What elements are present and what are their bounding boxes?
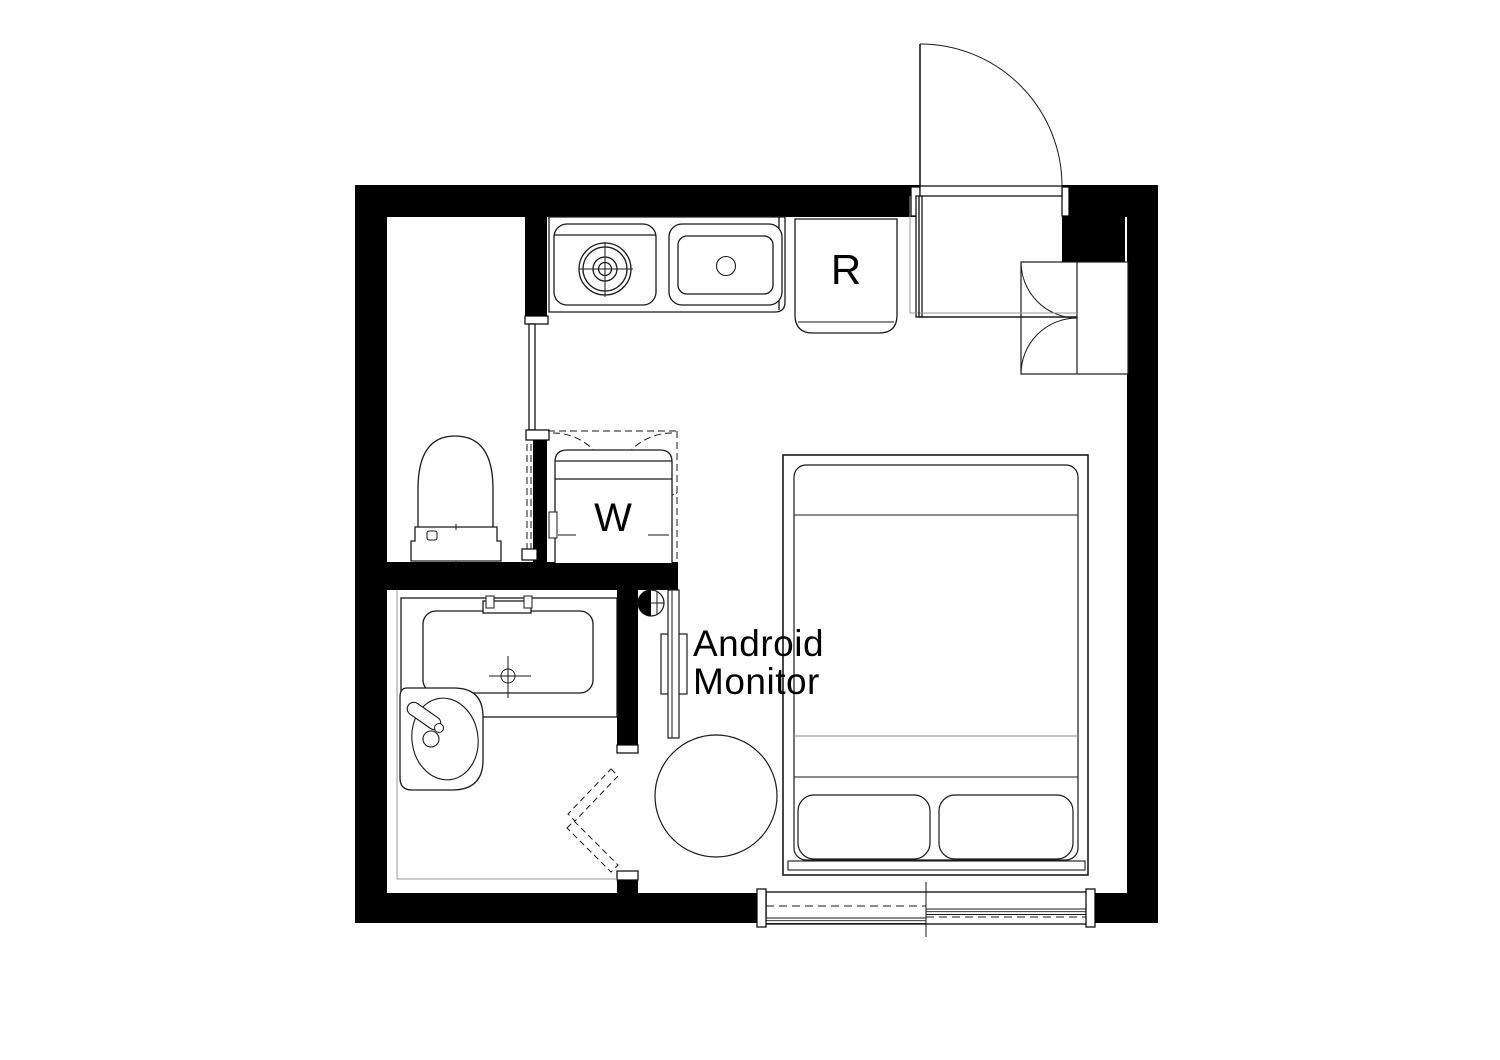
pillow-left	[798, 795, 930, 859]
bath-doorway-cap-top	[617, 745, 638, 753]
partition-cap-top	[525, 316, 548, 324]
stove	[554, 224, 656, 305]
window-cap-right	[1086, 889, 1095, 927]
refrigerator-label: R	[796, 246, 896, 294]
kitchen-sink	[669, 224, 782, 305]
entry-threshold	[920, 186, 1062, 196]
shoe-cabinet	[1021, 262, 1128, 374]
partition-cap-bottom	[526, 430, 549, 440]
wall-entry-stub	[1062, 217, 1125, 262]
toilet	[411, 436, 501, 569]
floor-plan-drawing	[0, 0, 1500, 1060]
floor-plan: R W AndroidMonitor	[0, 0, 1500, 1060]
wall-bathroom-right-lower	[617, 880, 638, 923]
glass-partition	[529, 324, 535, 430]
tub-knob-right	[524, 596, 532, 608]
bed-base-strip	[788, 861, 1085, 870]
washer-side-box	[549, 512, 557, 538]
door-jamb-right	[1062, 187, 1069, 216]
wall-kitchen-partition-upper	[525, 217, 547, 317]
wall-top-left	[355, 185, 920, 217]
wall-bathroom-right-upper	[617, 562, 638, 752]
monitor-label-line1: Android	[693, 623, 824, 664]
round-table	[655, 735, 777, 857]
washing-machine-label: W	[563, 496, 663, 541]
tub-knob-left	[486, 596, 494, 608]
wall-bottom-left	[355, 893, 759, 923]
bath-doorway-cap-bottom	[617, 871, 638, 880]
datum-marker	[638, 590, 664, 616]
double-bed	[783, 455, 1088, 875]
pillow-right	[939, 795, 1073, 859]
wall-bottom-right	[1094, 893, 1158, 923]
wall-right	[1127, 185, 1158, 923]
monitor-label-line2: Monitor	[693, 661, 820, 702]
window-cap-left	[757, 889, 766, 927]
monitor-screen	[668, 590, 679, 738]
toilet-door-cap	[522, 549, 537, 560]
washbasin	[400, 688, 483, 790]
toilet-tank	[411, 527, 501, 561]
basin-faucet-knob	[435, 724, 444, 733]
monitor-label: AndroidMonitor	[693, 625, 824, 701]
wall-left	[355, 185, 387, 923]
wall-kitchen-partition-lower	[533, 440, 547, 563]
